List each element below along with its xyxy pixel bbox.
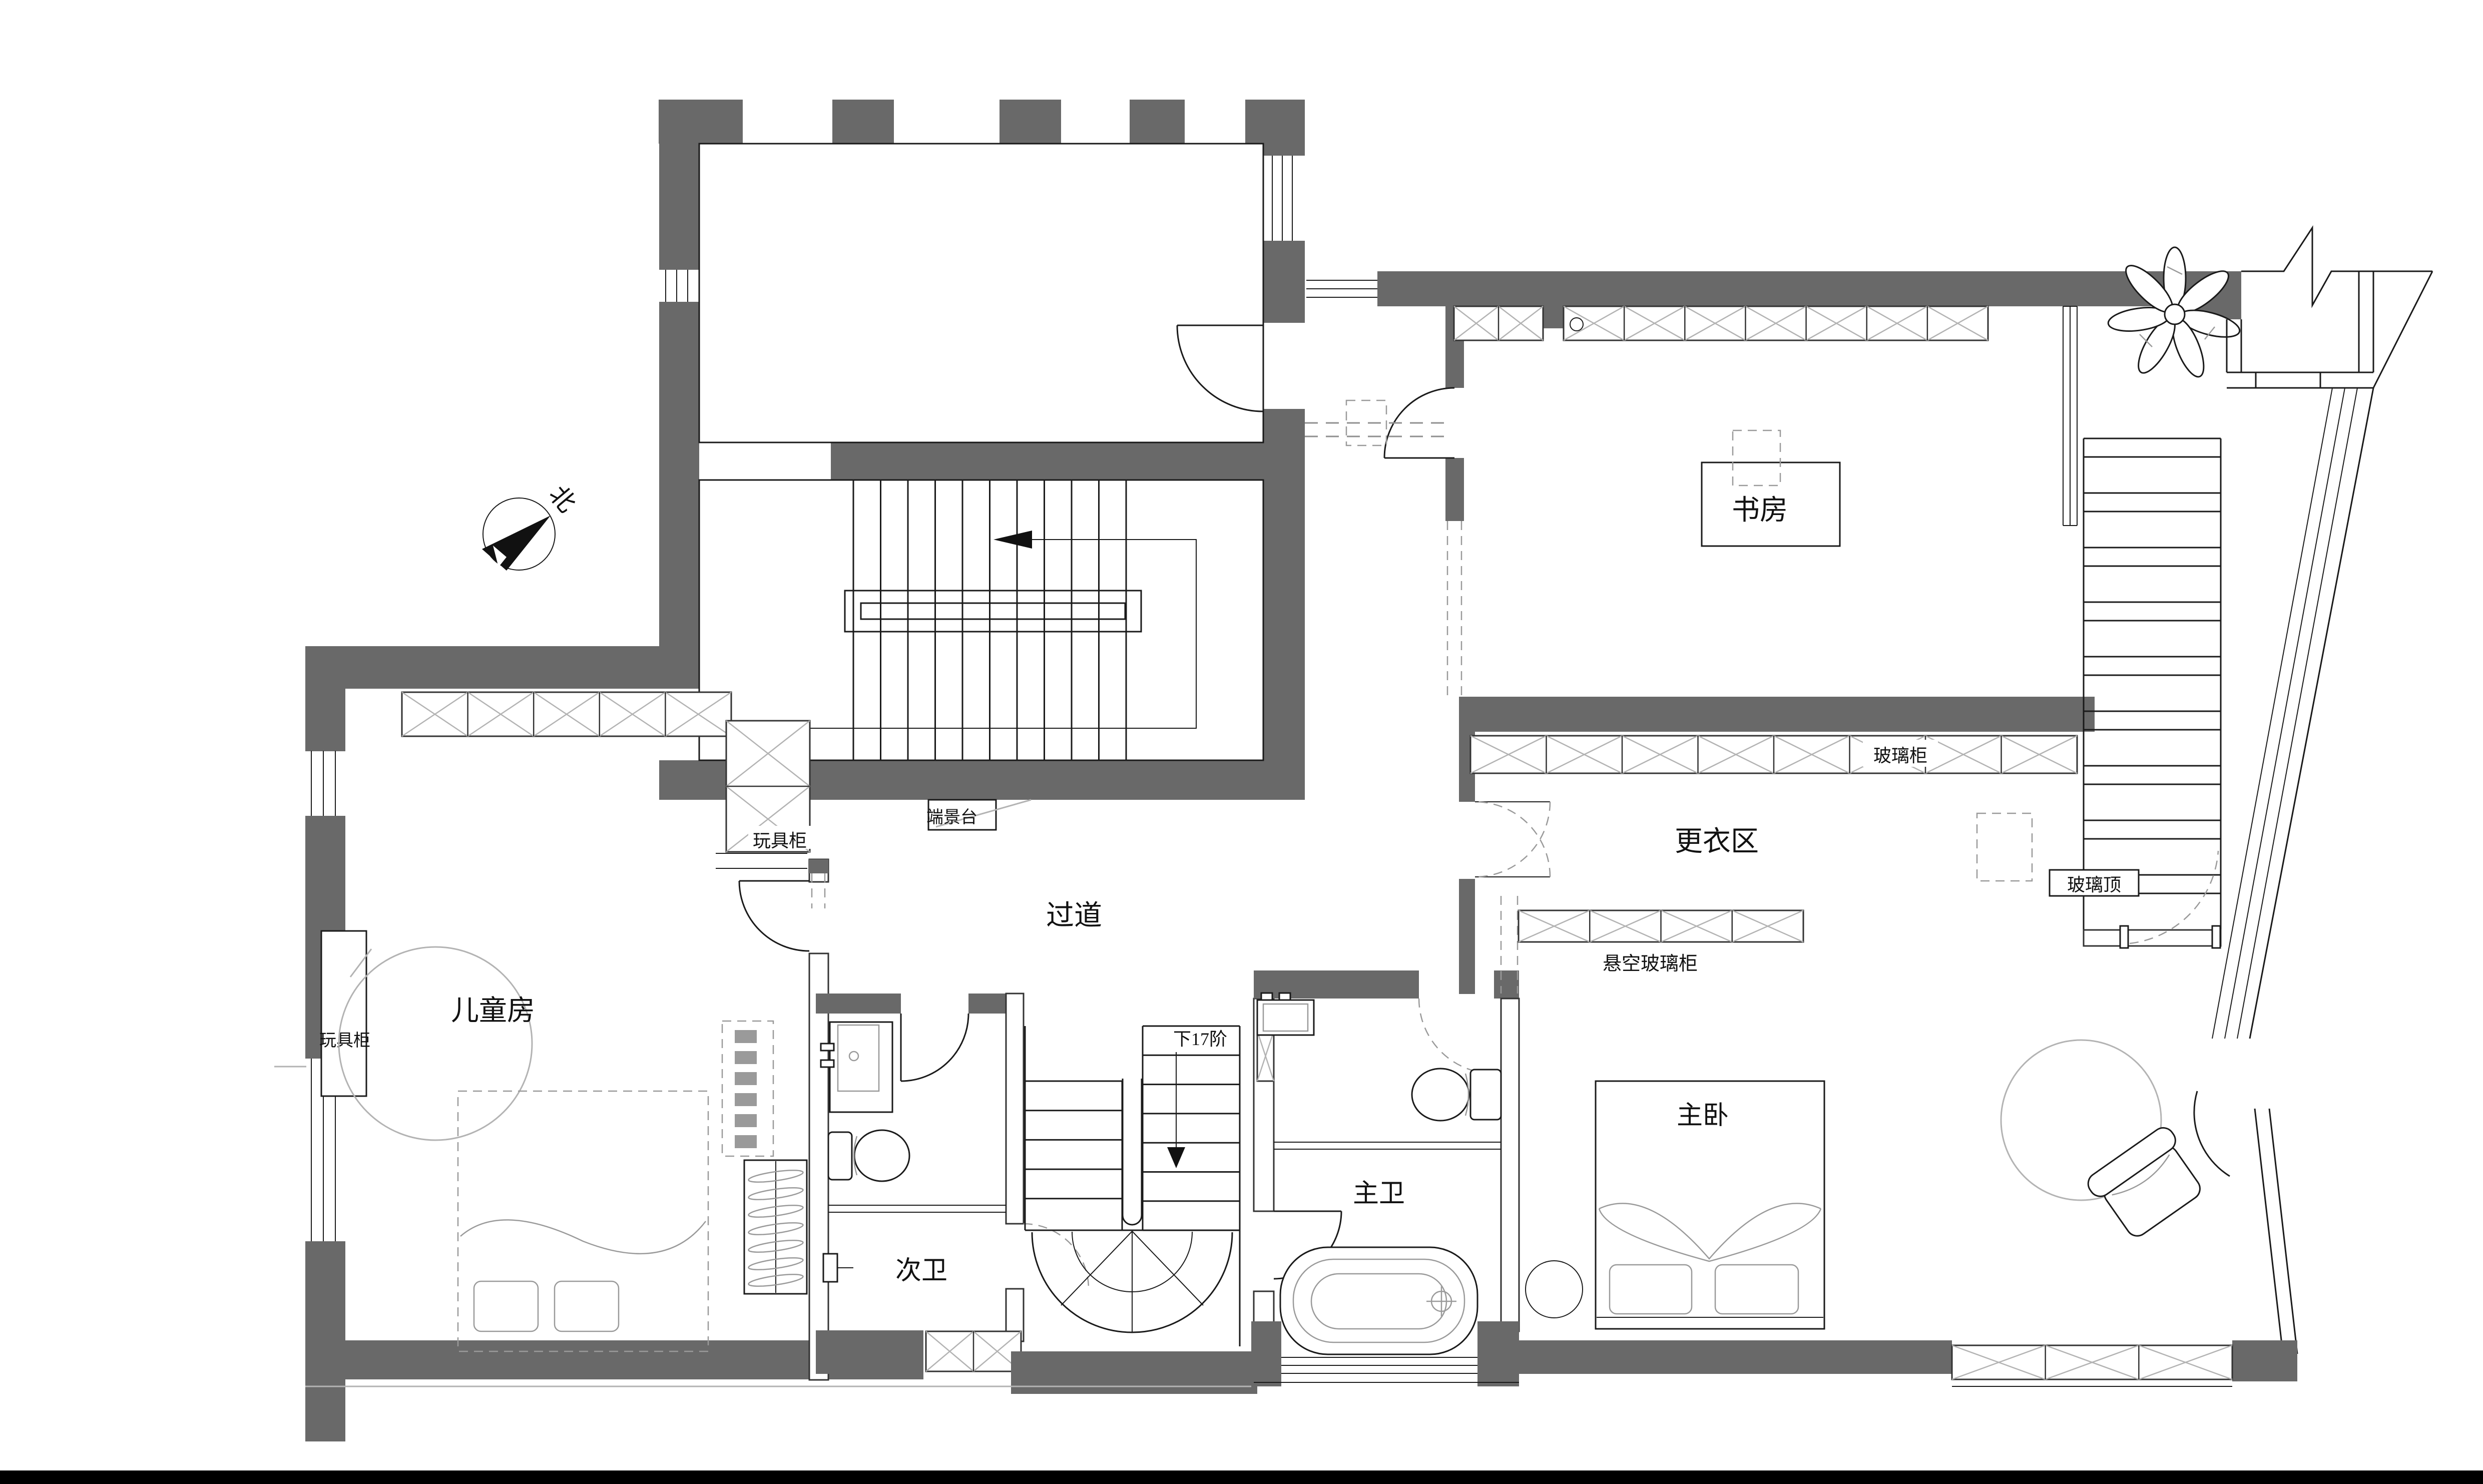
second-bath-sink: [821, 1022, 892, 1112]
master-bath-toilet-icon: [1412, 1069, 1501, 1121]
toy-cabinet-left-label: 玩具柜: [319, 1032, 370, 1050]
room-label-second-bath: 次卫: [895, 1257, 947, 1285]
study-top-cabinet-left: [1454, 306, 1543, 340]
master-window-seat-cabinet: [1952, 1345, 2232, 1379]
glass-cabinet-row: [1470, 736, 2077, 773]
kids-desk-toy-cabinet: [321, 931, 371, 1096]
glass-roof-label: 玻璃顶: [2067, 875, 2121, 895]
glass-cabinet-label: 玻璃柜: [1873, 746, 1927, 766]
room-label-dressing: 更衣区: [1675, 826, 1759, 857]
kids-closet-rail: [744, 1160, 807, 1294]
footer-bar: [0, 1470, 2483, 1484]
under-stair-cabinet: [926, 1331, 1021, 1371]
floor-plan-drawing: 北 玩具柜 端景台 玩具柜: [0, 0, 2483, 1484]
second-bath-toilet-icon: [828, 1130, 909, 1181]
bathtub-icon: [1280, 1247, 1477, 1354]
room-label-master-bath: 主卫: [1353, 1180, 1405, 1208]
floating-glass-cabinet-label: 悬空玻璃柜: [1603, 953, 1698, 974]
toy-cabinet-right-label: 玩具柜: [753, 831, 807, 851]
end-console-label: 端景台: [926, 808, 977, 827]
room-label-master: 主卧: [1677, 1102, 1729, 1130]
study-top-cabinet-right: [1564, 306, 1988, 340]
stairs-down-label: 下17阶: [1173, 1029, 1227, 1049]
room-label-corridor: 过道: [1046, 900, 1102, 931]
floor-plan-page: 北 玩具柜 端景台 玩具柜: [0, 0, 2483, 1484]
master-bath-sink: [1257, 993, 1314, 1035]
room-label-kids: 儿童房: [451, 996, 535, 1027]
floating-glass-cabinet: [1519, 910, 1803, 942]
master-bath-cabinet: [1257, 1031, 1274, 1081]
kids-top-cabinet: [402, 692, 731, 736]
room-label-study: 书房: [1732, 495, 1788, 526]
page-background: [0, 0, 2483, 1484]
